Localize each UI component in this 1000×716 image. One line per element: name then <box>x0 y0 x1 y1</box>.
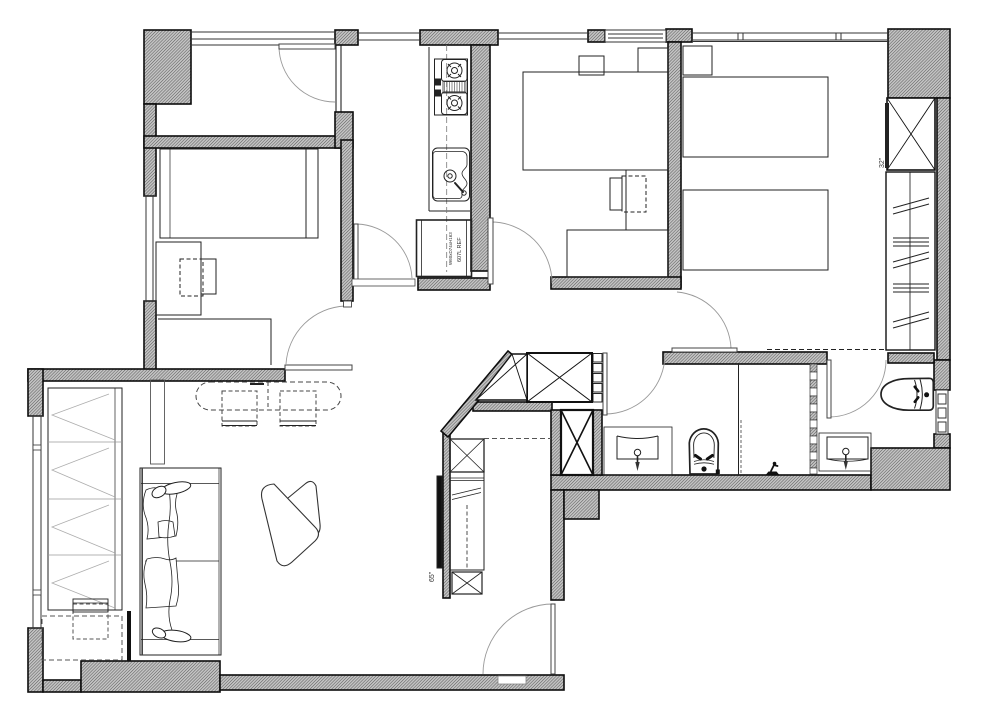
svg-text:65": 65" <box>429 571 436 582</box>
svg-text:607L REF: 607L REF <box>457 237 463 262</box>
svg-text:32": 32" <box>879 157 886 168</box>
svg-text:W60xD74xH163: W60xD74xH163 <box>448 232 453 265</box>
